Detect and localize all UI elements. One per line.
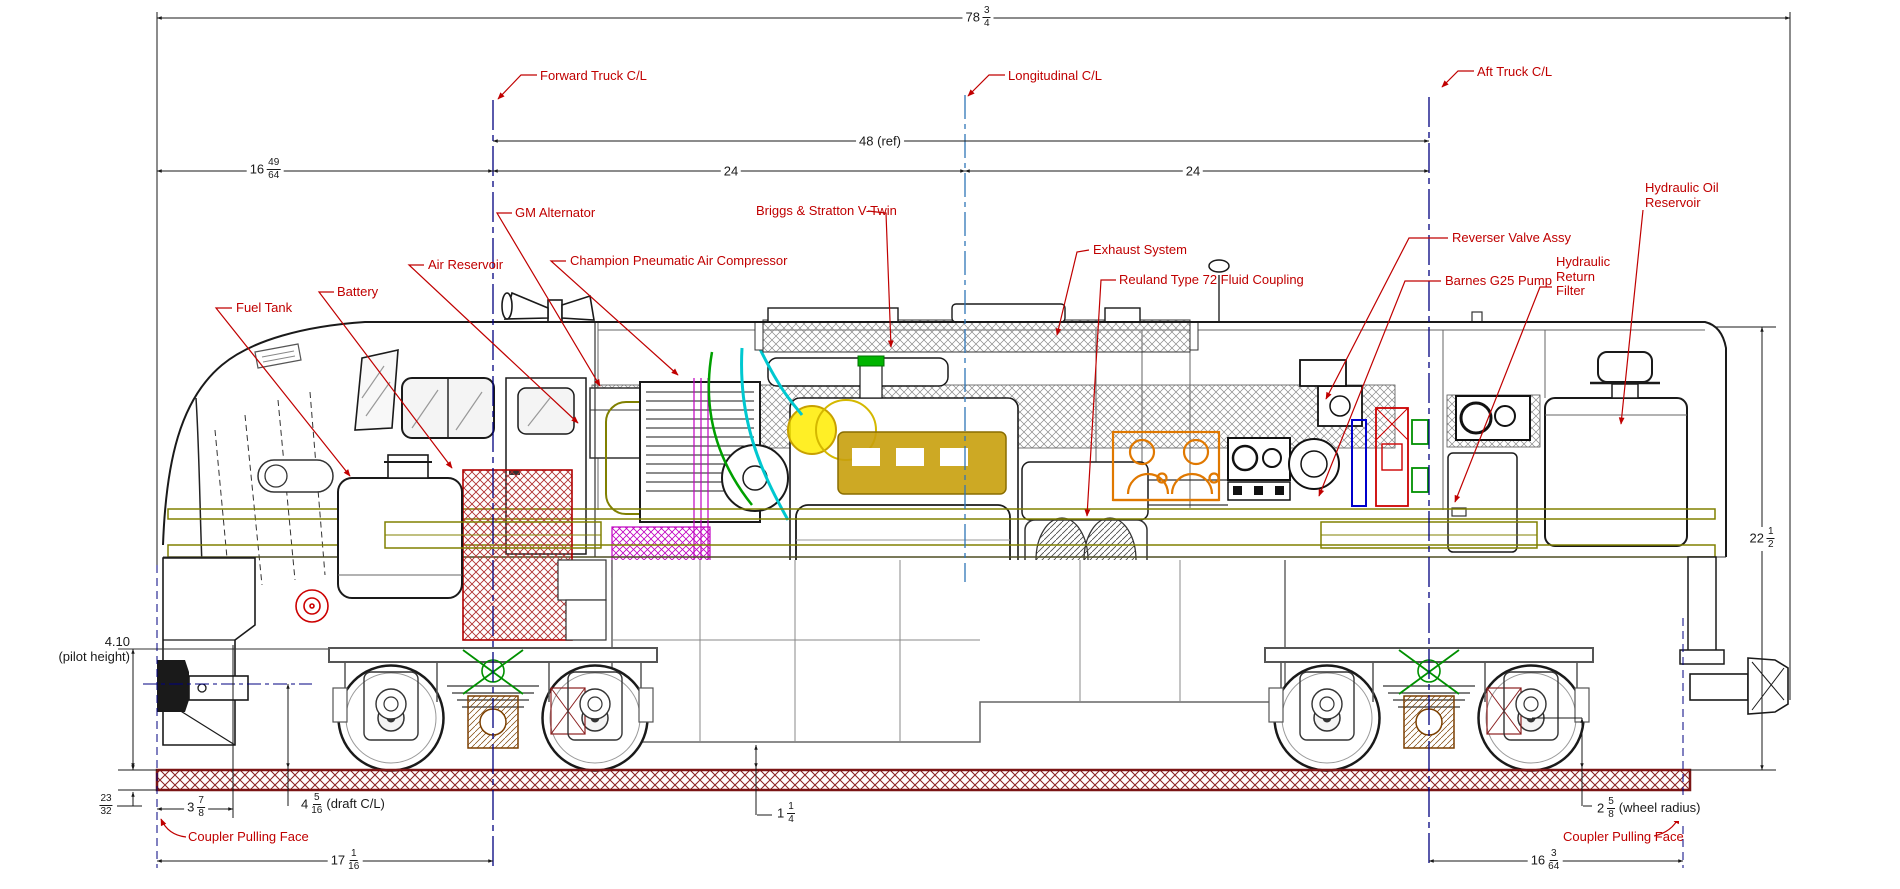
air-horn — [502, 293, 594, 322]
callout-longitudinal-cl: Longitudinal C/L — [1008, 68, 1102, 83]
callout-fuel-tank: Fuel Tank — [236, 300, 292, 315]
callout-air-reservoir: Air Reservoir — [428, 257, 503, 272]
callout-forward-truck-cl: Forward Truck C/L — [540, 68, 647, 83]
callout-hydraulic-oil-reservoir: Hydraulic OilReservoir — [1645, 181, 1719, 210]
dim-aft-half: 24 — [1183, 164, 1203, 179]
callout-aft-truck-cl: Aft Truck C/L — [1477, 64, 1552, 79]
callout-battery: Battery — [337, 284, 378, 299]
barnes-pump-assembly — [1456, 396, 1530, 440]
dim-truck-centers-ref: 48 (ref) — [856, 134, 904, 149]
dim-wheel-radius: 258(wheel radius) — [1594, 797, 1703, 821]
callout-briggs-stratton: Briggs & Stratton V-Twin — [756, 203, 897, 218]
brake-wheel — [296, 590, 328, 622]
callout-coupler-pulling-face-front: Coupler Pulling Face — [188, 829, 309, 844]
exhaust-cap — [1209, 260, 1229, 272]
dim-overall-height: 2212 — [1746, 527, 1777, 551]
drawing-canvas: 7834 48 (ref) 24 24 164964 4.10(pilot he… — [0, 0, 1900, 889]
callout-champion-compressor: Champion Pneumatic Air Compressor — [570, 253, 787, 268]
rear-coupler — [1690, 658, 1788, 714]
dim-forward-half: 24 — [721, 164, 741, 179]
battery-box — [463, 470, 572, 640]
dim-rail-height: 2332 — [96, 794, 115, 818]
callout-barnes-pump: Barnes G25 Pump — [1445, 273, 1552, 288]
dim-aft-truck-to-coupler: 16364 — [1528, 849, 1563, 873]
callout-coupler-pulling-face-rear: Coupler Pulling Face — [1563, 829, 1684, 844]
hood-door — [1448, 453, 1517, 552]
dim-coupler-to-forward-truck: 164964 — [247, 158, 284, 182]
technical-drawing — [0, 0, 1900, 889]
callout-reverser-valve: Reverser Valve Assy — [1452, 230, 1571, 245]
dim-underframe-clearance: 114 — [774, 802, 798, 826]
callout-gm-alternator: GM Alternator — [515, 205, 595, 220]
dim-coupler-overhang: 378 — [184, 796, 208, 820]
dim-overall-length: 7834 — [962, 6, 993, 30]
windshield — [355, 350, 398, 430]
exhaust-muffler-strip — [763, 320, 1190, 352]
underframe-equipment-box — [612, 560, 1285, 742]
dim-draft-centerline: 4516(draft C/L) — [298, 793, 388, 817]
rail — [157, 770, 1690, 790]
dim-pilot-height: 4.10(pilot height) — [58, 634, 130, 664]
callout-hydraulic-return-filter: HydraulicReturnFilter — [1556, 255, 1610, 299]
callout-exhaust-system: Exhaust System — [1093, 242, 1187, 257]
rear-pilot — [1680, 557, 1724, 664]
bell — [258, 460, 333, 492]
callout-reuland-coupling: Reuland Type 72 Fluid Coupling — [1119, 272, 1304, 287]
dim-front-truck-to-coupler: 17116 — [328, 849, 363, 873]
gm-alternator — [590, 388, 644, 458]
